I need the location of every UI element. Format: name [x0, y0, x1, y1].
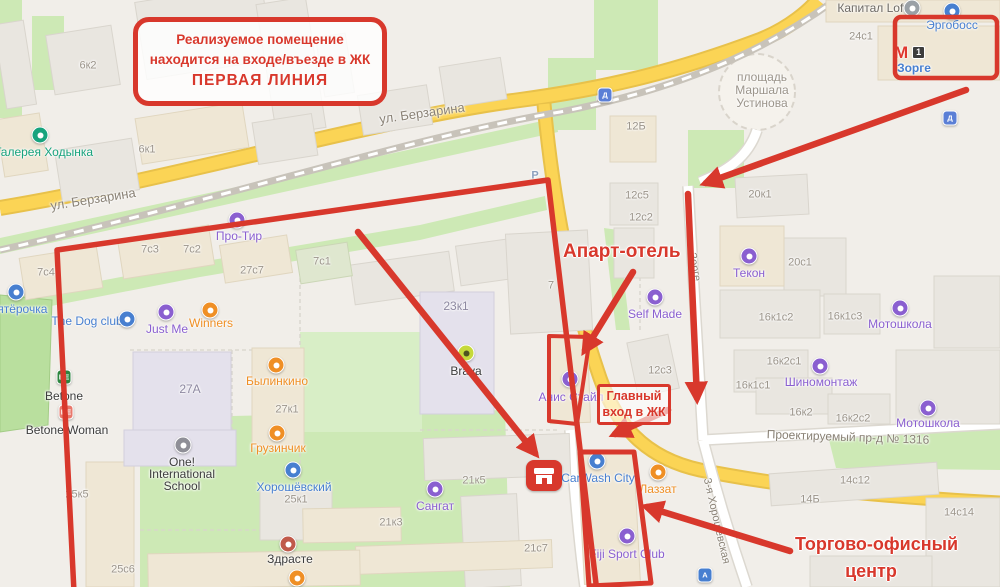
- map-label: 27А: [179, 383, 200, 395]
- fiji-icon[interactable]: [619, 528, 636, 545]
- zdraste-icon-glyph: [285, 541, 291, 547]
- map-label: Маршала: [735, 84, 788, 96]
- shinomontazh-icon[interactable]: [812, 358, 829, 375]
- map-label: Грузинчик: [250, 442, 305, 454]
- brava-icon-glyph: [463, 350, 469, 356]
- map-label: 25с6: [111, 565, 135, 576]
- map-label: 24с1: [849, 32, 873, 43]
- main-entrance-line-2: вход в ЖК: [600, 404, 668, 420]
- anis-style-icon[interactable]: [562, 371, 579, 388]
- kapital-loft-icon-glyph: [909, 5, 915, 11]
- map-label: Былинкино: [246, 375, 308, 387]
- office-center-line-2: центр: [795, 558, 947, 585]
- carwash-icon-glyph: [594, 458, 600, 464]
- map-label: CarWash City: [561, 472, 635, 484]
- map-label: Про-Тир: [216, 230, 262, 242]
- map-label: 16к1с3: [828, 312, 863, 323]
- map-label: площадь: [737, 71, 787, 83]
- map-label: 20к1: [748, 190, 771, 201]
- map-label: The Dog club: [51, 315, 122, 327]
- map-label: Сангат: [416, 500, 454, 512]
- carwash-icon[interactable]: [589, 453, 606, 470]
- anis-style-icon-glyph: [567, 376, 573, 382]
- kapital-loft-icon[interactable]: [904, 0, 921, 17]
- premises-marker[interactable]: [526, 460, 562, 491]
- map-label: Устинова: [736, 97, 787, 109]
- map-label: Зорге: [686, 252, 702, 282]
- map-label: Шиномонтаж: [785, 376, 858, 388]
- shinomontazh-icon-glyph: [817, 363, 823, 369]
- note-box: Реализуемое помещение находится на входе…: [133, 17, 387, 106]
- map-label: Self Made: [628, 308, 682, 320]
- betone-icon[interactable]: BE: [57, 370, 72, 385]
- pyaterochka-icon[interactable]: [8, 284, 25, 301]
- school-icon[interactable]: [175, 437, 192, 454]
- map-label: 16к2: [789, 408, 812, 419]
- just-me-icon-glyph: [163, 309, 169, 315]
- tekon-icon[interactable]: [741, 248, 758, 265]
- map-label: 23к1: [443, 300, 468, 312]
- school-icon-glyph: [180, 442, 186, 448]
- bus-stop-icon-glyph: А: [702, 571, 707, 579]
- map-label: Betone: [45, 390, 83, 402]
- just-me-icon[interactable]: [158, 304, 175, 321]
- map-label: 21к3: [379, 518, 402, 529]
- map-label: Brava: [450, 365, 481, 377]
- map-label: 21с7: [524, 544, 548, 555]
- ergoboss-icon-glyph: [949, 8, 955, 14]
- map-label: Мотошкола: [868, 318, 932, 330]
- map-label: 6к1: [138, 145, 155, 156]
- map-label: Лаззат: [639, 483, 676, 495]
- map-label: 16к2с1: [767, 357, 802, 368]
- map-label: Just Me: [146, 323, 188, 335]
- map-label: Хорошёвский: [256, 481, 331, 493]
- map-label: Галерея Ходынка: [0, 146, 93, 158]
- bylinkino-icon-glyph: [273, 362, 279, 368]
- motoshkola-icon[interactable]: [892, 300, 909, 317]
- map-label: 7с3: [141, 245, 159, 256]
- gruzinchik-icon[interactable]: [269, 425, 286, 442]
- horoshevsky-icon[interactable]: [285, 462, 302, 479]
- map-label: Betone Woman: [26, 424, 109, 436]
- main-entrance-line-1: Главный: [600, 388, 668, 404]
- map-label: 7: [548, 281, 554, 292]
- gruzinchik-icon-glyph: [274, 430, 280, 436]
- map-label: 12с3: [648, 366, 672, 377]
- office-center-line-1: Торгово-офисный: [795, 531, 947, 558]
- map-label: 27к1: [275, 405, 298, 416]
- lazzat-icon[interactable]: [650, 464, 667, 481]
- map-label: Зорге: [897, 62, 931, 74]
- metro-station[interactable]: М 1: [894, 44, 925, 61]
- bus-stop-icon[interactable]: А: [698, 568, 713, 583]
- map-label: 25к5: [65, 490, 88, 501]
- rail-station-icon[interactable]: Д: [598, 88, 613, 103]
- map-label: 20с1: [788, 258, 812, 269]
- map-label: 12с5: [625, 191, 649, 202]
- food-icon[interactable]: [289, 570, 306, 587]
- museum-icon[interactable]: [32, 127, 49, 144]
- map-label: 7с4: [37, 268, 55, 279]
- map-label: 6к2: [79, 61, 96, 72]
- map-label: Проектируемый пр-д № 1316: [767, 428, 930, 446]
- map-label: Эргобосс: [926, 19, 978, 31]
- bylinkino-icon[interactable]: [268, 357, 285, 374]
- metro-route-badge: 1: [912, 46, 925, 59]
- map-label: ул. Берзарина: [379, 101, 466, 126]
- map-label: 21к5: [462, 476, 485, 487]
- pro-tir-icon-glyph: [234, 217, 240, 223]
- apart-hotel-label: Апарт-отель: [563, 241, 681, 263]
- sangat-icon[interactable]: [427, 481, 444, 498]
- map-label: Р: [531, 171, 538, 182]
- map-label: 16к1с1: [736, 381, 771, 392]
- betone-woman-icon-glyph: BE: [61, 408, 71, 416]
- map-label: 7с1: [313, 257, 331, 268]
- rail-station-icon[interactable]: Д: [943, 111, 958, 126]
- museum-icon-glyph: [37, 132, 43, 138]
- fiji-icon-glyph: [624, 533, 630, 539]
- motoshkola-icon-glyph: [925, 405, 931, 411]
- map-label: Winners: [189, 317, 233, 329]
- metro-icon: М: [894, 44, 908, 61]
- main-entrance-box: Главный вход в ЖК: [597, 384, 671, 425]
- betone-icon-glyph: BE: [59, 373, 69, 381]
- map-label: 7с2: [183, 245, 201, 256]
- winners-icon[interactable]: [202, 302, 219, 319]
- motoshkola-icon[interactable]: [920, 400, 937, 417]
- pro-tir-icon[interactable]: [229, 212, 246, 229]
- map-label: ул. Берзарина: [50, 186, 137, 212]
- dog-club-icon-glyph: [124, 316, 130, 322]
- map-label: Fiji Sport Club: [589, 548, 664, 560]
- map-label: 14Б: [800, 495, 819, 506]
- tekon-icon-glyph: [746, 253, 752, 259]
- rail-station-icon-glyph: Д: [602, 91, 607, 99]
- map-label: Текон: [733, 267, 765, 279]
- betone-woman-icon[interactable]: BE: [59, 405, 74, 420]
- self-made-icon-glyph: [652, 294, 658, 300]
- map-label: 27с7: [240, 266, 264, 277]
- storefront-icon: [532, 466, 556, 486]
- map-label: 16к1с2: [759, 313, 794, 324]
- dog-club-icon[interactable]: [119, 311, 136, 328]
- note-line-2: находится на входе/въезде в ЖК: [150, 50, 370, 70]
- pyaterochka-icon-glyph: [13, 289, 19, 295]
- map-label: School: [164, 480, 201, 492]
- map-label: 14с12: [840, 476, 870, 487]
- map-label: Капитал Loft: [837, 2, 906, 14]
- map-label: 14с14: [944, 508, 974, 519]
- winners-icon-glyph: [207, 307, 213, 313]
- map-label: 12Б: [626, 122, 645, 133]
- map-label: 16к2с2: [836, 414, 871, 425]
- map-label: Пятёрочка: [0, 303, 47, 315]
- map-label: Мотошкола: [896, 417, 960, 429]
- map-label: 12с2: [629, 213, 653, 224]
- brava-icon[interactable]: [458, 345, 475, 362]
- office-center-label: Торгово-офисный центр: [795, 531, 947, 585]
- zdraste-icon[interactable]: [280, 536, 297, 553]
- lazzat-icon-glyph: [655, 469, 661, 475]
- note-line-1: Реализуемое помещение: [176, 30, 343, 50]
- rail-station-icon-glyph: Д: [947, 114, 952, 122]
- map-label: Здрасте: [267, 553, 313, 565]
- ergoboss-icon[interactable]: [944, 3, 961, 20]
- map-canvas[interactable]: ул. Берзаринаул. БерзаринаплощадьМаршала…: [0, 0, 1000, 587]
- map-label: 3-я Хорошёвская: [701, 477, 731, 565]
- horoshevsky-icon-glyph: [290, 467, 296, 473]
- map-label: 25к1: [284, 495, 307, 506]
- motoshkola-icon-glyph: [897, 305, 903, 311]
- sangat-icon-glyph: [432, 486, 438, 492]
- food-icon-glyph: [294, 575, 300, 581]
- map-label: Анис Стайл: [538, 391, 603, 403]
- note-line-3: ПЕРВАЯ ЛИНИЯ: [192, 69, 328, 92]
- self-made-icon[interactable]: [647, 289, 664, 306]
